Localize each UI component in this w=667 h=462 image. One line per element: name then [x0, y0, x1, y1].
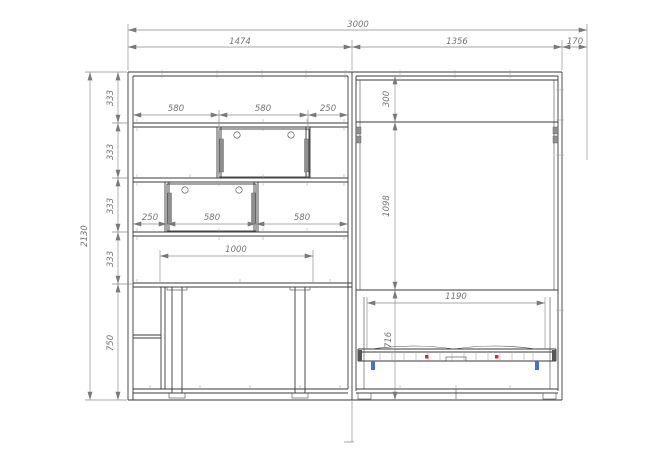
dim-bed-door-height: 1098 — [382, 195, 392, 217]
door-hole-icon — [182, 187, 188, 193]
dimension-labels: 3000 1474 1356 170 2130 333 333 333 333 … — [80, 20, 583, 351]
hinge-icon — [220, 139, 224, 172]
hinge-icon — [168, 193, 172, 224]
upper-cabinet-door — [219, 129, 309, 177]
dim-middle-a: 250 — [142, 213, 158, 223]
dim-middle-b: 580 — [204, 213, 220, 223]
door-hole-icon — [236, 187, 242, 193]
blue-clip-icon — [535, 361, 539, 370]
end-bracket-icon — [358, 350, 362, 361]
dim-desk-width: 1000 — [225, 245, 247, 255]
bed-hinge-icon — [553, 127, 558, 134]
bed-unit-structure — [128, 24, 587, 442]
dim-bed-unit-width: 1356 — [446, 37, 468, 47]
dim-row1-height: 333 — [106, 90, 116, 106]
desk-legs — [167, 287, 310, 398]
dim-bed-top-gap: 300 — [382, 91, 392, 107]
dim-upper-b: 580 — [255, 104, 271, 114]
bed-hinge-icon — [356, 136, 361, 143]
dim-middle-c: 580 — [294, 213, 310, 223]
dim-overall-width: 3000 — [347, 20, 369, 30]
dim-row3-height: 333 — [106, 198, 116, 214]
dim-side-width: 170 — [567, 37, 583, 47]
drawing-svg: 3000 1474 1356 170 2130 333 333 333 333 … — [0, 0, 667, 462]
dim-left-unit-width: 1474 — [229, 37, 251, 47]
dim-bed-base-height: 716 — [384, 331, 394, 348]
dim-row2-height: 333 — [106, 144, 116, 160]
red-fitting-icon — [425, 355, 429, 359]
screw-ticks — [137, 70, 564, 389]
door-hole-icon — [288, 132, 294, 138]
folded-bed-platform — [358, 346, 556, 370]
furniture-technical-drawing: 3000 1474 1356 170 2130 333 333 333 333 … — [0, 0, 667, 462]
left-unit-structure — [128, 72, 562, 400]
dim-row4-height: 333 — [106, 251, 116, 267]
red-fitting-icon — [495, 355, 499, 359]
door-hole-icon — [234, 132, 240, 138]
blue-clip-icon — [371, 361, 375, 370]
dim-overall-height: 2130 — [80, 225, 90, 247]
dim-upper-c: 250 — [320, 104, 336, 114]
dim-base-height: 750 — [106, 335, 116, 351]
dim-upper-a: 580 — [168, 104, 184, 114]
hinge-icon — [252, 193, 256, 224]
bed-hinge-icon — [553, 136, 558, 143]
bed-hinge-icon — [356, 127, 361, 134]
hinge-icon — [305, 139, 309, 172]
dim-bed-inner-width: 1190 — [445, 292, 467, 302]
end-bracket-icon — [552, 350, 556, 361]
